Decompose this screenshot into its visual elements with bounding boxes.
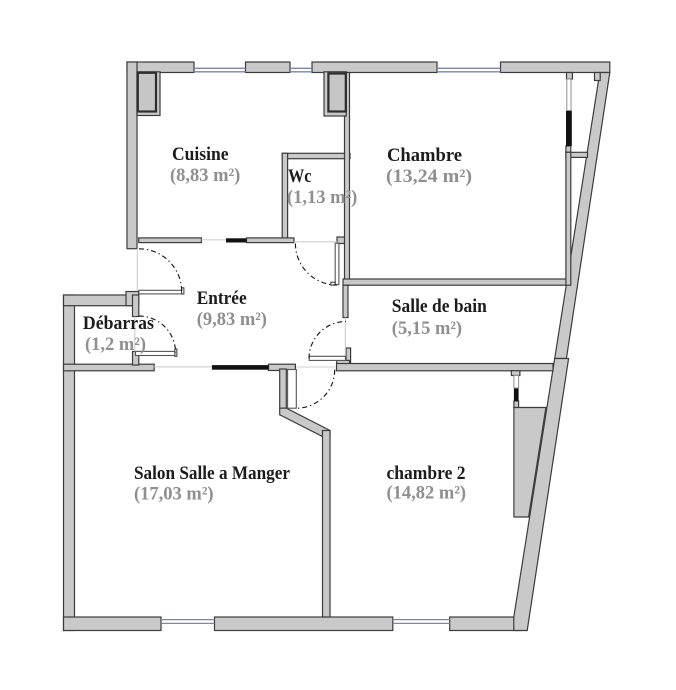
svg-text:chambre 2: chambre 2 [387, 464, 466, 484]
svg-text:(1,13 m²): (1,13 m²) [287, 188, 357, 208]
svg-text:Cuisine: Cuisine [172, 145, 229, 165]
svg-text:(8,83 m²): (8,83 m²) [170, 166, 240, 186]
svg-text:(1,2 m²): (1,2 m²) [85, 335, 146, 355]
svg-text:Salle de bain: Salle de bain [392, 297, 488, 317]
svg-text:Débarras: Débarras [83, 314, 154, 334]
svg-text:Chambre: Chambre [387, 146, 462, 166]
svg-text:(14,82 m²): (14,82 m²) [387, 484, 467, 504]
svg-text:(5,15 m²): (5,15 m²) [392, 319, 462, 339]
svg-text:Salon Salle a Manger: Salon Salle a Manger [134, 464, 290, 484]
svg-text:(13,24 m²): (13,24 m²) [386, 167, 472, 187]
svg-text:(9,83 m²): (9,83 m²) [197, 310, 267, 330]
svg-text:(17,03 m²): (17,03 m²) [134, 485, 214, 505]
svg-text:Wc: Wc [288, 167, 312, 187]
svg-text:Entrée: Entrée [197, 289, 247, 309]
